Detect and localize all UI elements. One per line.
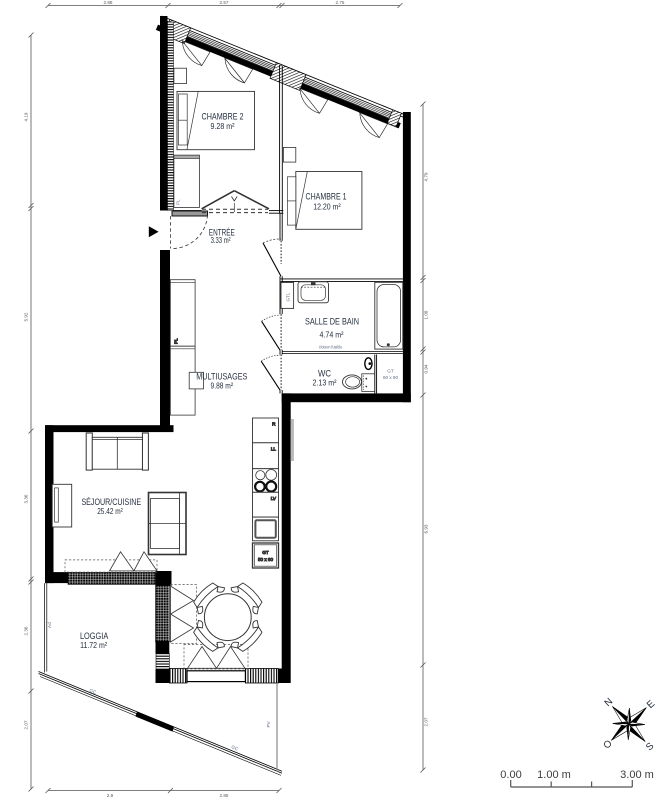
svg-text:4.74 m²: 4.74 m² bbox=[320, 330, 344, 340]
svg-text:LL: LL bbox=[271, 447, 277, 452]
svg-text:11.72 m²: 11.72 m² bbox=[80, 640, 107, 650]
svg-text:50 x 60: 50 x 60 bbox=[258, 557, 274, 562]
svg-text:CHAMBRE 1: CHAMBRE 1 bbox=[306, 192, 347, 202]
svg-text:2.36: 2.36 bbox=[24, 626, 29, 635]
svg-text:SALLE DE BAIN: SALLE DE BAIN bbox=[305, 317, 359, 327]
svg-text:0.94: 0.94 bbox=[424, 364, 429, 373]
svg-text:5.92: 5.92 bbox=[24, 312, 29, 321]
svg-text:2.85: 2.85 bbox=[220, 793, 229, 798]
svg-text:CHAMBRE 2: CHAMBRE 2 bbox=[202, 112, 244, 122]
svg-text:4.19: 4.19 bbox=[24, 112, 29, 121]
svg-text:9.28 m²: 9.28 m² bbox=[211, 121, 235, 131]
svg-text:GT: GT bbox=[387, 368, 394, 373]
svg-text:25.42 m²: 25.42 m² bbox=[97, 506, 123, 516]
svg-text:Ad: Ad bbox=[47, 622, 52, 628]
svg-text:9.88 m²: 9.88 m² bbox=[211, 381, 234, 391]
svg-text:2.57: 2.57 bbox=[220, 0, 229, 5]
svg-text:3.00 m: 3.00 m bbox=[620, 769, 654, 781]
svg-text:2.07: 2.07 bbox=[24, 720, 29, 729]
svg-text:0.00: 0.00 bbox=[500, 769, 521, 781]
svg-text:3.33 m²: 3.33 m² bbox=[211, 235, 231, 245]
svg-text:2.9: 2.9 bbox=[107, 793, 114, 798]
svg-text:2.88: 2.88 bbox=[104, 0, 113, 5]
svg-text:60 x 90: 60 x 90 bbox=[383, 375, 399, 380]
svg-text:GTL: GTL bbox=[285, 292, 290, 301]
svg-text:1.00 m: 1.00 m bbox=[537, 769, 571, 781]
svg-text:PL: PL bbox=[174, 338, 179, 344]
svg-text:12.20 m²: 12.20 m² bbox=[313, 201, 341, 211]
svg-text:GT: GT bbox=[262, 550, 269, 555]
svg-text:3.36: 3.36 bbox=[24, 494, 29, 503]
svg-text:2.13 m²: 2.13 m² bbox=[313, 378, 337, 388]
svg-text:4.79: 4.79 bbox=[424, 172, 429, 181]
svg-text:6.93: 6.93 bbox=[424, 524, 429, 533]
svg-text:2.75: 2.75 bbox=[336, 0, 345, 5]
svg-text:PV: PV bbox=[266, 720, 271, 727]
svg-text:cloison fusible: cloison fusible bbox=[319, 344, 343, 349]
svg-text:1.08: 1.08 bbox=[424, 310, 429, 319]
svg-text:PL: PL bbox=[176, 199, 181, 205]
svg-text:2.07: 2.07 bbox=[424, 717, 429, 726]
